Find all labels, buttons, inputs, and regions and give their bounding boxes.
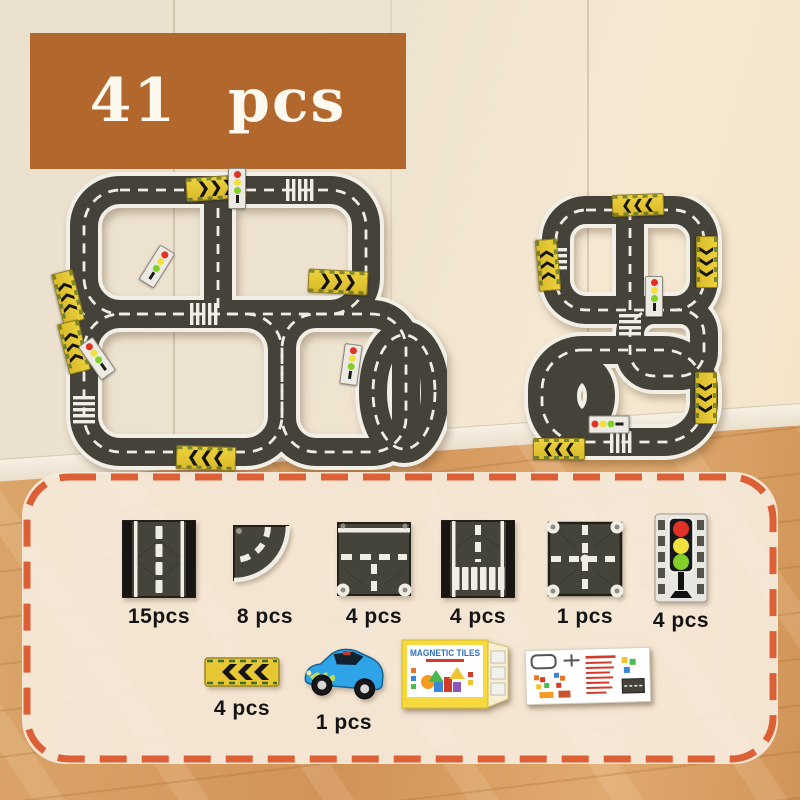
traffic-light-icon: [589, 416, 630, 434]
legend-item: 1 pcs: [544, 518, 626, 629]
legend-item: 4 pcs: [333, 518, 415, 629]
legend-item: 4 pcs: [437, 518, 519, 629]
instruction-manual: [524, 646, 652, 706]
chevron-glyph: ❮❮❮: [621, 194, 654, 215]
piece-count: 4 pcs: [346, 605, 402, 629]
chevron-sign-icon: ❮❮❮: [535, 238, 561, 292]
curved-road-tile-icon: [222, 516, 308, 600]
chevron-sign-icon: ❯❯❯: [307, 268, 368, 295]
piece-count: 4 pcs: [653, 609, 709, 633]
toy-car: [296, 640, 392, 706]
piece-count: 4 pcs: [450, 605, 506, 629]
chevron-sign-icon: ❮❮❮: [612, 193, 665, 217]
legend-item: 15pcs: [118, 518, 200, 629]
chevron-sign-icon: ❯❯❯: [696, 236, 718, 288]
legend-item: MAGNETIC TILES: [398, 636, 513, 714]
road-network: [73, 179, 435, 452]
piece-count-banner: 41 pcs: [30, 33, 406, 169]
product-image: 41 pcs: [0, 0, 800, 800]
crosswalk-tile-icon: [437, 518, 519, 600]
chevron-glyph: ❯❯❯: [697, 246, 717, 279]
legend-item: [524, 646, 652, 706]
piece-count-text: 41 pcs: [90, 66, 347, 136]
chevron-sign-icon: ❯❯❯: [695, 372, 717, 424]
traffic-light-icon: [653, 512, 709, 604]
chevron-glyph: ❮❮❮: [537, 248, 560, 282]
traffic-light-icon: [645, 276, 663, 317]
chevron-sign-icon: ❮❮❮: [176, 445, 237, 471]
piece-count: 8 pcs: [237, 605, 293, 629]
product-box: MAGNETIC TILES: [398, 636, 513, 714]
cross-junction-tile-icon: [544, 518, 626, 600]
legend-item: 4 pcs: [202, 652, 282, 721]
legend-item: 8 pcs: [222, 516, 308, 629]
piece-count: 1 pcs: [557, 605, 613, 629]
assembled-track-left: [52, 168, 447, 473]
chevron-sign-icon: ❮❮❮: [533, 438, 585, 460]
chevron-glyph: ❯❯❯: [319, 271, 358, 293]
chevron-glyph: ❮❮❮: [187, 447, 225, 468]
piece-count: 15pcs: [128, 605, 190, 629]
chevron-sign-icon: [202, 652, 282, 692]
piece-count: 1 pcs: [316, 711, 372, 735]
straight-road-tile-icon: [118, 518, 200, 600]
t-junction-tile-icon: [333, 518, 415, 600]
traffic-light-icon: [228, 168, 246, 209]
legend-item: 1 pcs: [296, 640, 392, 735]
product-box-title: MAGNETIC TILES: [410, 648, 480, 658]
piece-count: 4 pcs: [214, 697, 270, 721]
legend-item: 4 pcs: [646, 512, 716, 633]
chevron-glyph: ❮❮❮: [543, 439, 576, 459]
chevron-glyph: ❯❯❯: [696, 382, 716, 415]
